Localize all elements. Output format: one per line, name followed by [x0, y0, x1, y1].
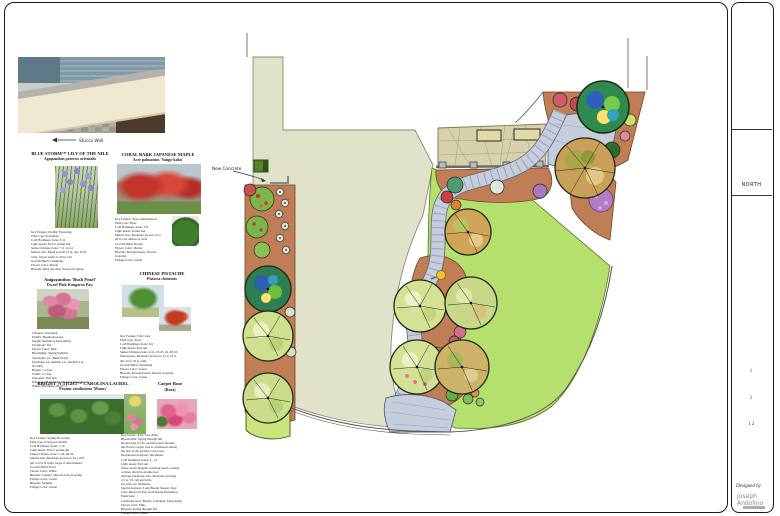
plant-botanical: Agapanthus praecox orientalis: [30, 157, 110, 161]
plant-photo: [37, 289, 89, 329]
plant-specs: Key Feature: Spring Flowering Plant type…: [30, 436, 135, 489]
plant-botanical: (Rosa): [145, 388, 195, 392]
plant-specs: Category: Perennial Family: Haemodoracea…: [32, 331, 108, 388]
plant-botanical: Prunus caroliniana 'Monus': [28, 387, 138, 391]
plant-botanical: Dwarf Pink Kangaroo Paw: [32, 283, 108, 287]
plant-photo-small: [159, 307, 191, 331]
plant-photo: [117, 164, 201, 214]
plant-botanical: Acer palmatum 'Sango-kaku': [112, 158, 204, 162]
designer-name: Joseph Andolino: [737, 493, 780, 507]
plant-specs: Key Feature: Prolific Flowering Plant ty…: [31, 230, 109, 271]
sheet-number: 1 2: [740, 422, 762, 427]
plant-specs: Key Feature: Year-round Interest Plant t…: [115, 217, 170, 262]
plant-photo: [122, 285, 164, 317]
sheet-mark: 1: [740, 369, 762, 374]
plant-photo: [157, 399, 197, 429]
fine-print: [743, 506, 765, 509]
drawing-sheet: New Concrete Stucco Wall NORTH 1 1 1 2 D…: [0, 0, 780, 516]
plant-botanical: Pistacia chinensis: [120, 277, 204, 281]
plant-photo: [40, 394, 126, 434]
sheet-mark: 1: [740, 396, 762, 401]
title-block-divider: [732, 195, 772, 196]
plant-photo-small: [172, 216, 199, 246]
siding-dark: [18, 57, 60, 83]
plant-specs: Key feature: Easy Care Plant Bloom time:…: [121, 433, 201, 515]
title-block: [731, 2, 774, 513]
plant-title: Carpet Rose: [145, 381, 195, 386]
plant-photo: [124, 394, 146, 434]
designed-by-label: Designed by: [736, 484, 761, 489]
north-label: NORTH: [732, 182, 771, 188]
title-block-divider: [732, 129, 772, 130]
plant-specs: Key Feature: Fall Color Plant type: Tree…: [120, 334, 202, 379]
plant-photo: [55, 166, 98, 228]
stucco-wall-photo: [18, 57, 165, 133]
